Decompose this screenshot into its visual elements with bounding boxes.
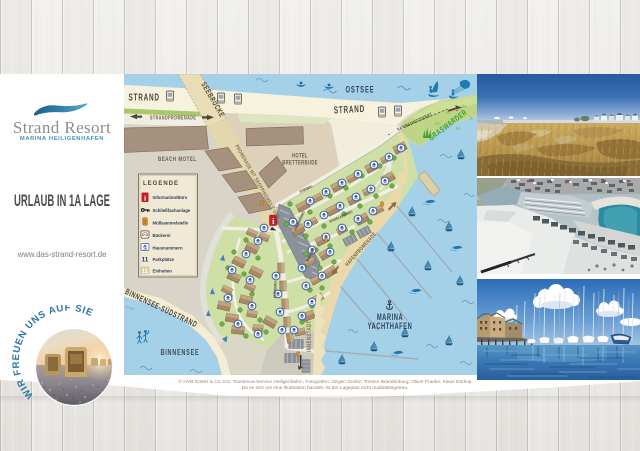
svg-text:KAJÜTENWEG: KAJÜTENWEG (273, 280, 278, 298)
svg-text:11: 11 (142, 269, 149, 275)
svg-text:OSTSEE: OSTSEE (346, 84, 375, 95)
svg-text:INNENSTADT: INNENSTADT (306, 320, 313, 352)
svg-text:YACHTHAFEN: YACHTHAFEN (368, 321, 413, 332)
svg-text:Parkplätze: Parkplätze (153, 257, 175, 262)
svg-text:Bäckerei: Bäckerei (153, 233, 171, 238)
svg-text:Schließfachanlage: Schließfachanlage (153, 208, 191, 213)
svg-text:i: i (144, 193, 146, 202)
svg-text:Hausnummern: Hausnummern (153, 246, 183, 251)
svg-text:11: 11 (142, 257, 149, 264)
svg-text:Information/Büro: Information/Büro (153, 195, 188, 200)
svg-text:Müllsammelstelle: Müllsammelstelle (153, 221, 189, 226)
svg-text:STRAND: STRAND (334, 102, 366, 116)
svg-text:BINNENSEE: BINNENSEE (161, 347, 200, 358)
svg-text:STRAND: STRAND (129, 91, 160, 103)
svg-text:LEGENDE: LEGENDE (143, 181, 179, 187)
svg-text:1a: 1a (143, 247, 147, 251)
svg-text:Einheiten: Einheiten (153, 269, 173, 274)
svg-text:STRANDPROMENADE: STRANDPROMENADE (150, 115, 196, 122)
svg-text:BEACH MOTEL: BEACH MOTEL (158, 156, 197, 163)
svg-text:BRETTERBUDE: BRETTERBUDE (282, 160, 317, 167)
